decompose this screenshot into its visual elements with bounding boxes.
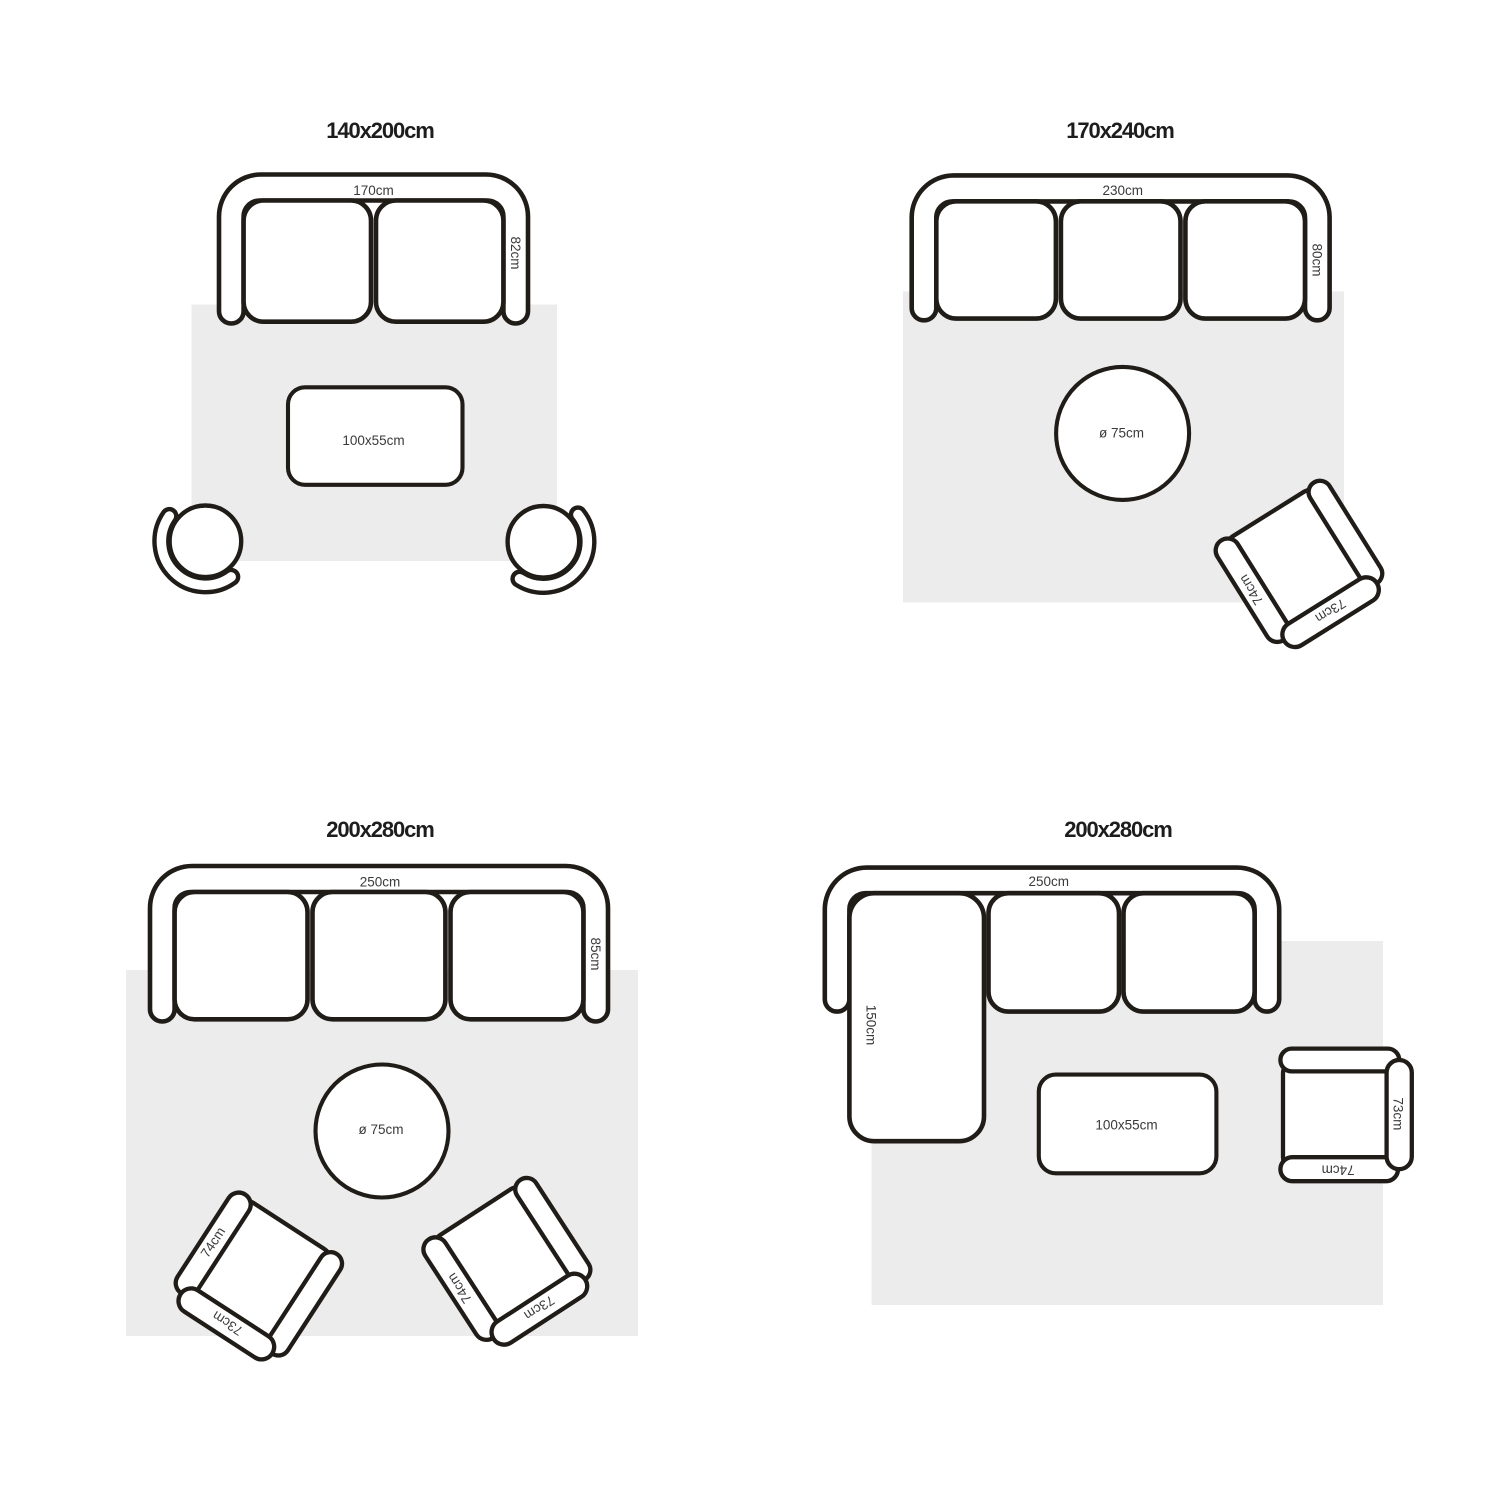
svg-text:170x240cm: 170x240cm <box>1066 118 1174 143</box>
svg-text:170cm: 170cm <box>353 183 394 198</box>
svg-text:ø 75cm: ø 75cm <box>1099 426 1144 441</box>
svg-text:230cm: 230cm <box>1103 183 1144 198</box>
svg-text:250cm: 250cm <box>360 875 401 890</box>
svg-text:80cm: 80cm <box>1310 243 1325 276</box>
svg-text:200x280cm: 200x280cm <box>326 817 434 842</box>
svg-text:250cm: 250cm <box>1029 874 1070 889</box>
svg-text:100x55cm: 100x55cm <box>342 433 404 448</box>
svg-text:140x200cm: 140x200cm <box>326 118 434 143</box>
svg-text:200x280cm: 200x280cm <box>1064 817 1172 842</box>
svg-text:ø 75cm: ø 75cm <box>358 1122 403 1137</box>
svg-text:82cm: 82cm <box>508 236 523 269</box>
svg-text:100x55cm: 100x55cm <box>1095 1118 1157 1133</box>
svg-text:150cm: 150cm <box>863 1005 878 1046</box>
svg-text:85cm: 85cm <box>588 937 603 970</box>
